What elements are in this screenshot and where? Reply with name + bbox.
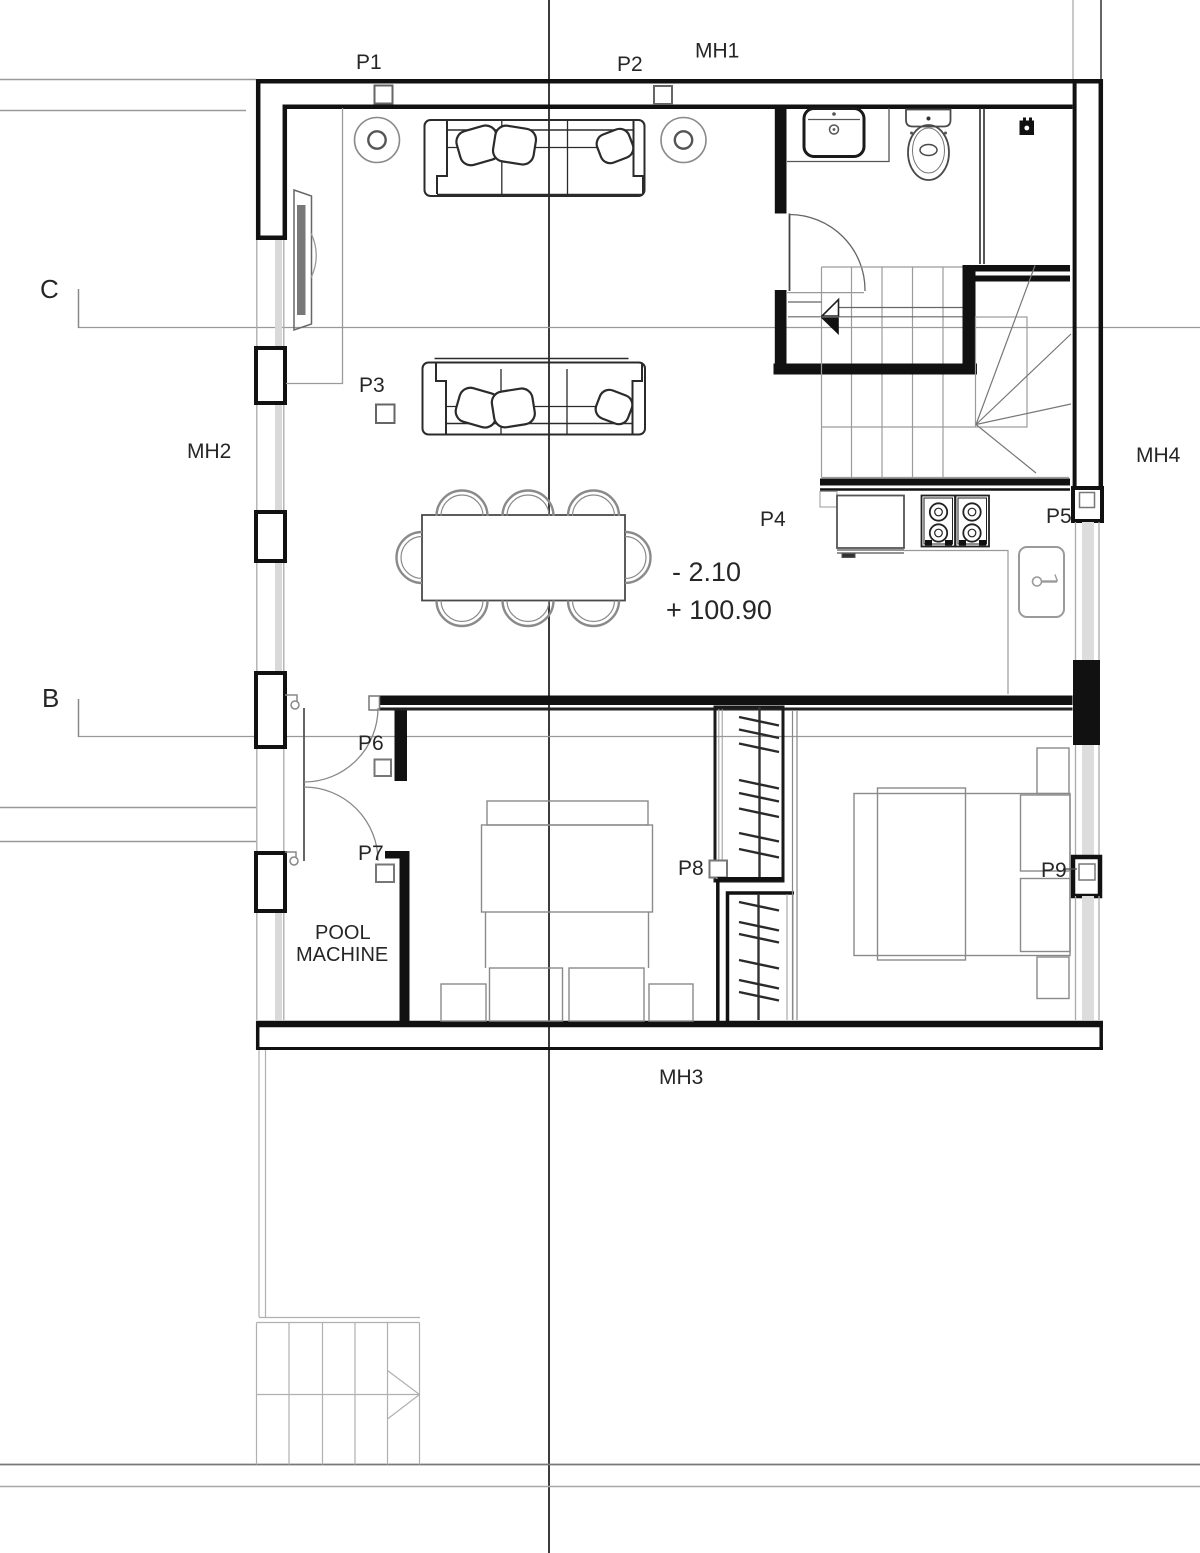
svg-text:P5: P5 <box>1046 505 1072 528</box>
svg-text:P6: P6 <box>358 732 384 755</box>
svg-text:- 2.10: - 2.10 <box>672 557 741 587</box>
svg-text:P1: P1 <box>356 51 382 74</box>
svg-text:MH2: MH2 <box>187 440 231 463</box>
svg-text:C: C <box>40 274 59 304</box>
svg-text:POOL: POOL <box>315 922 371 944</box>
svg-text:+ 100.90: + 100.90 <box>666 595 772 625</box>
svg-text:MH4: MH4 <box>1136 444 1181 467</box>
svg-text:MACHINE: MACHINE <box>296 944 388 966</box>
svg-text:P7: P7 <box>358 842 384 865</box>
svg-text:B: B <box>42 683 59 713</box>
svg-text:MH1: MH1 <box>695 40 739 63</box>
svg-text:P9: P9 <box>1041 859 1067 882</box>
svg-text:MH3: MH3 <box>659 1066 703 1089</box>
svg-text:P8: P8 <box>678 857 704 880</box>
svg-text:P4: P4 <box>760 508 786 531</box>
svg-text:P3: P3 <box>359 374 385 397</box>
svg-text:P2: P2 <box>617 53 643 76</box>
